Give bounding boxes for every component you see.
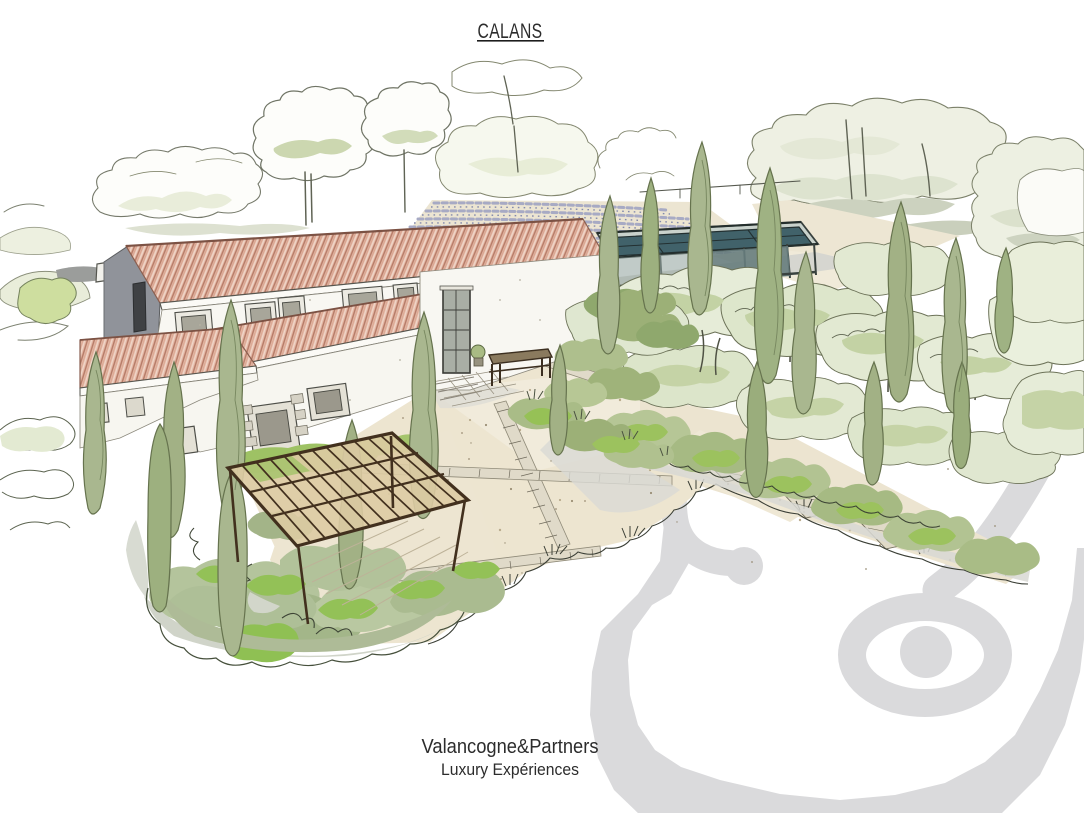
svg-text:CALANS: CALANS	[478, 20, 543, 43]
svg-text:Luxury Expériences: Luxury Expériences	[441, 761, 579, 779]
svg-text:Valancogne&Partners: Valancogne&Partners	[422, 736, 599, 758]
